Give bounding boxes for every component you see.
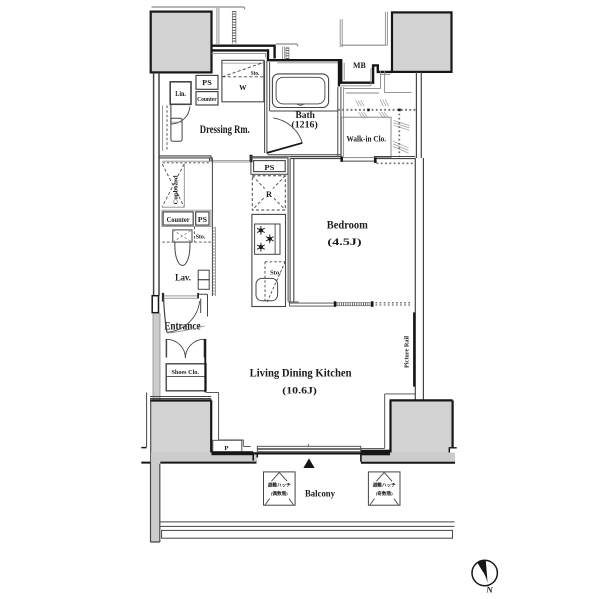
svg-text:Shoes Clo.: Shoes Clo.: [172, 369, 200, 376]
svg-text:Bedroom: Bedroom: [327, 219, 368, 232]
svg-text:(1216): (1216): [291, 120, 317, 131]
svg-text:W: W: [239, 83, 247, 92]
svg-text:Picture Rail: Picture Rail: [405, 336, 411, 368]
svg-text:Living Dining Kitchen: Living Dining Kitchen: [250, 366, 353, 379]
svg-text:Sto.: Sto.: [196, 234, 206, 241]
svg-text:PS: PS: [202, 79, 212, 87]
svg-text:Cupboard: Cupboard: [172, 175, 179, 204]
svg-text:避難ハッチ: 避難ハッチ: [373, 482, 396, 489]
svg-text:Dressing Rm.: Dressing Rm.: [200, 123, 250, 136]
svg-text:(奇数階): (奇数階): [376, 490, 393, 497]
svg-text:Counter: Counter: [167, 216, 191, 224]
svg-text:(偶数階): (偶数階): [271, 490, 288, 497]
svg-text:Balcony: Balcony: [305, 489, 335, 499]
svg-text:Lav.: Lav.: [175, 272, 191, 282]
svg-text:(10.6J): (10.6J): [282, 385, 317, 396]
svg-text:PS: PS: [198, 216, 207, 224]
svg-text:(4.5J): (4.5J): [327, 237, 361, 248]
svg-text:P: P: [224, 445, 228, 452]
svg-text:Counter: Counter: [197, 96, 217, 103]
svg-text:Lin.: Lin.: [175, 90, 186, 98]
svg-text:PS: PS: [264, 163, 274, 172]
svg-text:R: R: [266, 190, 273, 199]
svg-text:Walk-in Clo.: Walk-in Clo.: [347, 133, 387, 143]
svg-text:避難ハッチ: 避難ハッチ: [268, 482, 291, 489]
svg-text:Sto.: Sto.: [270, 269, 281, 276]
svg-text:Sto.: Sto.: [251, 70, 260, 77]
svg-text:MB: MB: [353, 60, 366, 70]
